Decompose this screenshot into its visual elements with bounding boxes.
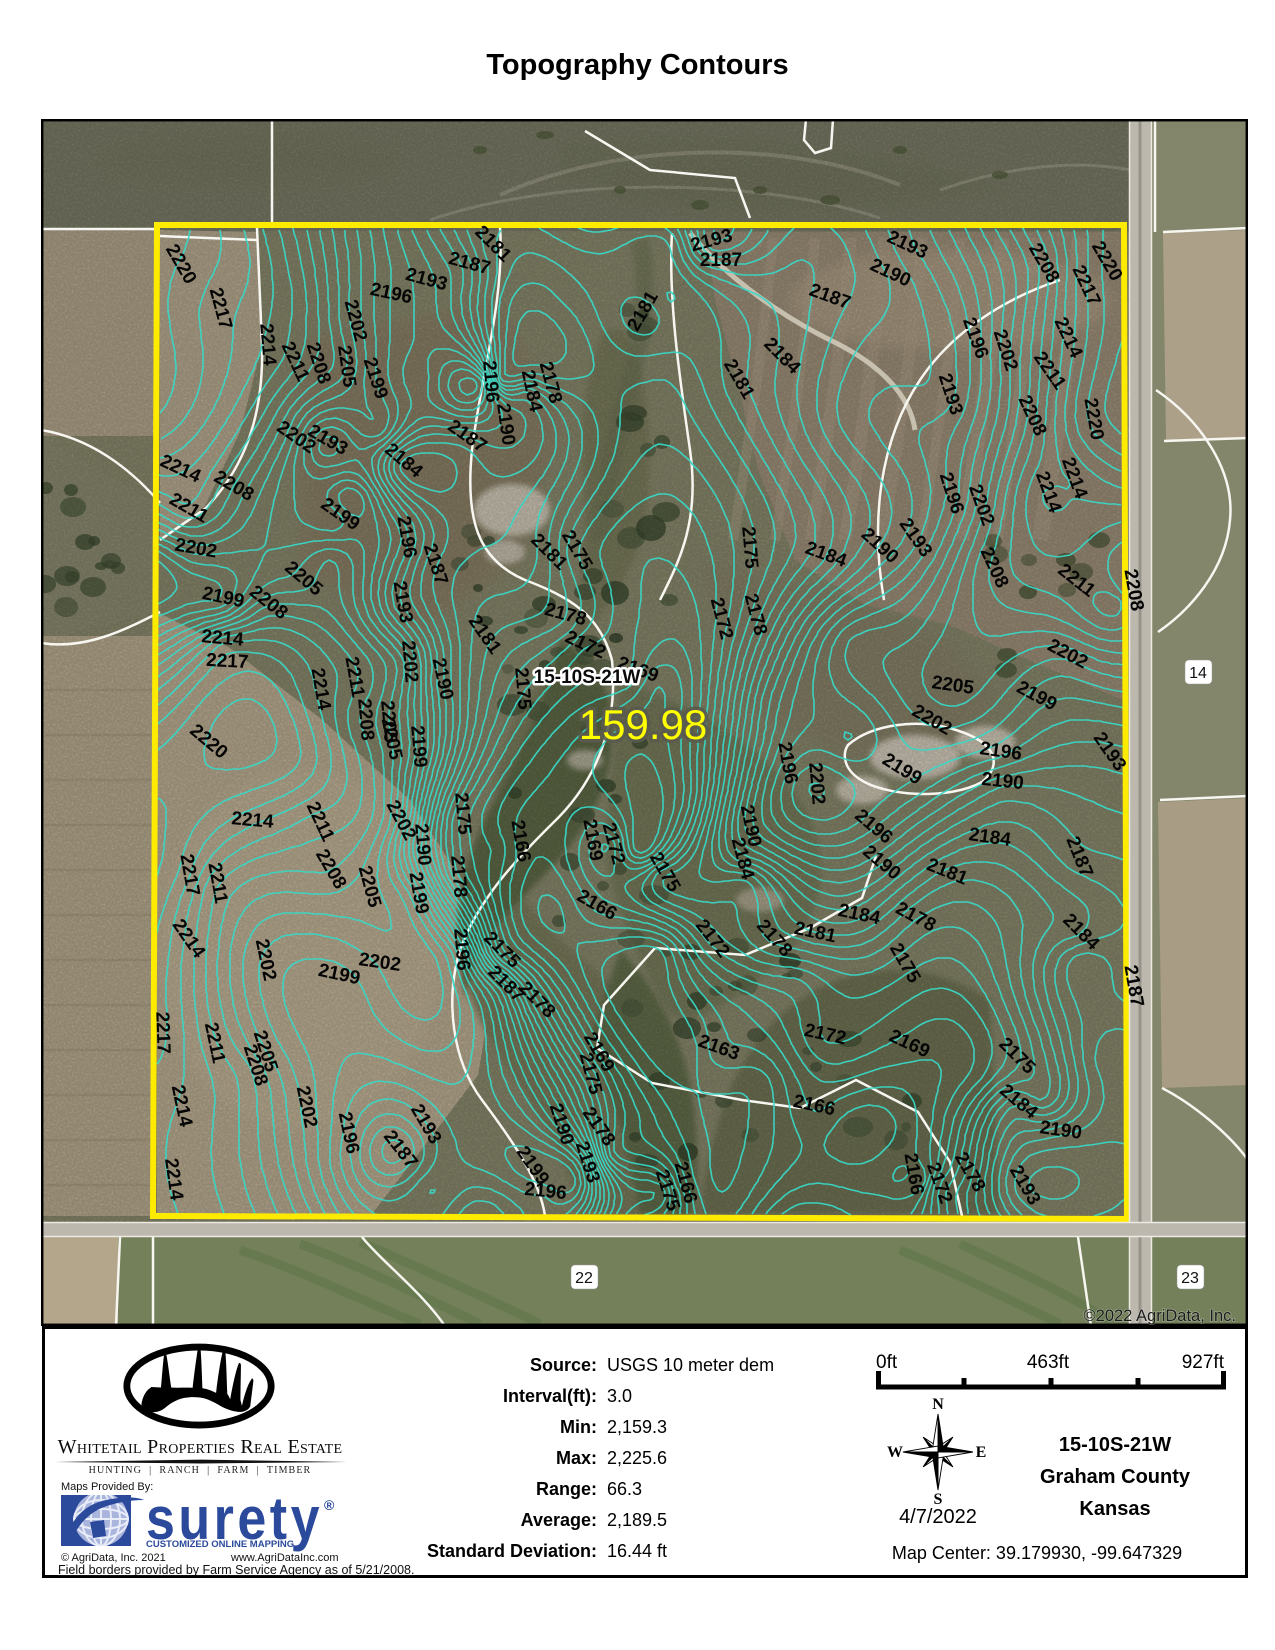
svg-text:2208: 2208 (353, 698, 378, 742)
svg-text:®: ® (324, 1497, 335, 1513)
svg-text:CUSTOMIZED ONLINE MAPPING: CUSTOMIZED ONLINE MAPPING (146, 1539, 294, 1550)
svg-text:N: N (932, 1396, 944, 1413)
svg-text:2175: 2175 (510, 667, 535, 711)
svg-text:2217: 2217 (151, 1011, 173, 1054)
svg-text:22: 22 (575, 1270, 593, 1287)
svg-text:2190: 2190 (980, 769, 1024, 794)
svg-text:2175: 2175 (450, 792, 475, 836)
svg-text:14: 14 (1189, 665, 1207, 682)
svg-text:W: W (887, 1444, 903, 1461)
svg-text:2175: 2175 (737, 526, 762, 570)
svg-text:2196: 2196 (478, 360, 503, 404)
svg-text:2196: 2196 (449, 928, 474, 972)
svg-text:23: 23 (1181, 1270, 1199, 1287)
svg-text:2196: 2196 (523, 1179, 567, 1204)
svg-text:2202: 2202 (397, 640, 422, 684)
svg-text:2187: 2187 (700, 250, 742, 271)
svg-text:©2022 AgriData, Inc.: ©2022 AgriData, Inc. (1084, 1307, 1237, 1325)
svg-text:2214: 2214 (201, 626, 245, 651)
svg-text:2178: 2178 (446, 855, 471, 899)
svg-text:159.98: 159.98 (579, 701, 707, 748)
svg-text:15-10S-21W: 15-10S-21W (534, 667, 641, 688)
svg-text:2199: 2199 (406, 725, 431, 769)
svg-text:2190: 2190 (410, 823, 435, 867)
svg-text:E: E (976, 1444, 987, 1461)
svg-text:2202: 2202 (804, 762, 829, 806)
svg-text:2214: 2214 (231, 808, 275, 833)
svg-text:2214: 2214 (255, 323, 280, 367)
svg-text:2217: 2217 (206, 650, 249, 673)
